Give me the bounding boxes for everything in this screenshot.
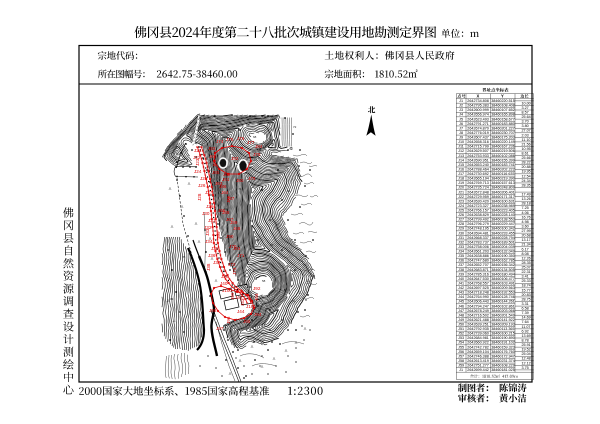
svg-text:38460181.025: 38460181.025 [491,368,515,372]
svg-text:25.04: 25.04 [522,352,531,356]
svg-text:33: 33 [170,297,174,301]
svg-text:J96: J96 [226,316,231,324]
svg-text:4.98: 4.98 [522,220,529,224]
svg-text:38460134.505: 38460134.505 [491,268,515,272]
svg-text:21.56: 21.56 [522,142,531,146]
svg-text:12.26: 12.26 [522,256,531,260]
svg-text:49: 49 [247,323,251,327]
svg-text:38460138.553: 38460138.553 [491,218,515,222]
svg-text:64: 64 [287,189,291,193]
svg-text:2642739.060: 2642739.060 [467,332,489,336]
svg-text:14.69: 14.69 [522,316,531,320]
svg-text:38460159.323: 38460159.323 [491,345,515,349]
svg-text:38460192.553: 38460192.553 [491,291,515,295]
svg-text:8.08: 8.08 [522,252,529,256]
svg-text:2642684.981: 2642684.981 [467,336,489,340]
svg-text:J14: J14 [458,158,464,162]
svg-text:2642795.383: 2642795.383 [467,104,489,108]
svg-text:38460116.635: 38460116.635 [491,172,514,176]
svg-text:J2: J2 [459,104,463,108]
svg-text:2642723.327: 2642723.327 [467,204,489,208]
svg-text:J82: J82 [231,156,239,161]
svg-text:38460190.890: 38460190.890 [491,336,515,340]
svg-text:2642638.829: 2642638.829 [467,213,489,217]
svg-text:38460209.193: 38460209.193 [491,323,515,327]
svg-text:19.95: 19.95 [522,170,531,174]
svg-text:J53: J53 [458,336,464,340]
svg-text:J69: J69 [216,231,221,239]
svg-text:38460165.898: 38460165.898 [491,113,515,117]
svg-text:J85: J85 [212,170,220,175]
svg-text:2642766.157: 2642766.157 [467,209,489,213]
svg-text:21.34: 21.34 [522,243,531,247]
svg-text:J21: J21 [194,148,202,153]
svg-text:2642672.848: 2642672.848 [467,190,489,194]
svg-text:J43: J43 [458,291,464,295]
svg-text:38460107.652: 38460107.652 [491,108,515,112]
svg-text:38460190.350: 38460190.350 [491,254,515,258]
svg-text:J100: J100 [222,288,232,293]
svg-text:38460132.049: 38460132.049 [491,250,515,254]
svg-text:J10: J10 [458,140,464,144]
svg-text:10.95: 10.95 [522,147,531,151]
svg-text:38460228.140: 38460228.140 [491,213,515,217]
svg-text:38460108.408: 38460108.408 [491,104,515,108]
svg-text:J37: J37 [458,263,464,267]
svg-text:J49: J49 [458,318,464,322]
svg-text:70: 70 [238,187,242,191]
svg-text:8.78: 8.78 [522,338,529,342]
svg-text:J25: J25 [458,209,464,213]
svg-text:J56: J56 [458,350,464,354]
svg-text:38460248.809: 38460248.809 [491,186,515,190]
svg-text:58: 58 [262,279,266,283]
svg-text:J83: J83 [208,146,216,151]
svg-text:59: 59 [250,219,254,223]
svg-text:J5: J5 [459,117,463,121]
svg-text:20.83: 20.83 [522,293,531,297]
svg-text:7.39: 7.39 [522,311,529,315]
svg-text:2642729.959: 2642729.959 [467,195,489,199]
svg-text:J40: J40 [220,281,228,286]
svg-text:38460183.741: 38460183.741 [491,163,515,167]
svg-text:38460219.506: 38460219.506 [491,149,515,153]
svg-text:68: 68 [253,135,257,139]
svg-text:2642751.277: 2642751.277 [467,364,489,368]
svg-text:2642668.337: 2642668.337 [467,236,489,240]
svg-text:J17: J17 [458,172,464,176]
svg-text:J1: J1 [459,368,463,372]
svg-text:38460156.342: 38460156.342 [491,263,515,267]
svg-text:38460141.922: 38460141.922 [491,318,515,322]
svg-text:Y: Y [501,94,504,99]
svg-text:22.31: 22.31 [522,270,531,274]
svg-text:J44: J44 [237,309,245,314]
svg-text:20.68: 20.68 [522,234,531,238]
svg-text:J73: J73 [232,267,237,275]
svg-text:J29: J29 [206,204,214,209]
svg-text:35: 35 [182,255,186,259]
svg-text:2642747.680: 2642747.680 [467,259,489,263]
svg-text:2.03: 2.03 [522,133,529,137]
svg-text:J30: J30 [458,231,464,235]
svg-text:J39: J39 [458,272,464,276]
svg-text:2642764.990: 2642764.990 [467,295,489,299]
svg-text:J71: J71 [237,253,245,258]
svg-text:38460204.039: 38460204.039 [491,245,515,249]
svg-text:11.10: 11.10 [522,138,531,142]
svg-text:J26: J26 [458,213,464,217]
svg-text:2642661.203: 2642661.203 [467,250,489,254]
svg-text:38460167.236: 38460167.236 [491,145,515,149]
svg-text:38460158.677: 38460158.677 [491,117,515,121]
svg-text:J20: J20 [458,186,464,190]
svg-text:2642674.870: 2642674.870 [467,126,489,130]
svg-text:2642656.974: 2642656.974 [467,113,489,117]
svg-text:62: 62 [224,207,228,211]
svg-text:2642683.871: 2642683.871 [467,268,489,272]
svg-text:J94: J94 [254,312,262,317]
svg-text:J75: J75 [226,137,234,142]
svg-text:38460230.707: 38460230.707 [491,131,515,135]
svg-text:2642697.525: 2642697.525 [467,286,489,290]
svg-text:2642794.247: 2642794.247 [467,304,489,308]
svg-text:25.91: 25.91 [522,343,531,347]
svg-text:J23: J23 [458,199,464,203]
svg-text:J34: J34 [458,250,464,254]
svg-text:7.25: 7.25 [522,206,529,210]
svg-text:18.74: 18.74 [522,284,531,288]
svg-text:J40: J40 [458,277,464,281]
svg-text:12.48: 12.48 [522,357,531,361]
svg-text:2642639.251: 2642639.251 [467,323,489,327]
svg-text:J23: J23 [195,158,200,166]
svg-text:J9: J9 [459,136,463,140]
svg-text:38460175.203: 38460175.203 [491,136,515,140]
svg-text:38460231.374: 38460231.374 [491,359,515,363]
svg-text:38460209.563: 38460209.563 [491,286,515,290]
svg-text:J78: J78 [253,152,261,157]
svg-text:2642694.481: 2642694.481 [467,231,489,235]
svg-text:J52: J52 [458,332,464,336]
svg-text:3.60: 3.60 [522,224,529,228]
svg-text:J8: J8 [459,131,463,135]
svg-text:27.07: 27.07 [522,129,531,133]
svg-text:38460100.342: 38460100.342 [491,227,515,231]
svg-text:J99: J99 [230,292,235,300]
svg-text:J25: J25 [200,176,208,181]
svg-text:J39: J39 [221,274,229,279]
svg-text:3.70: 3.70 [522,120,529,124]
svg-text:J59: J59 [458,364,464,368]
svg-text:J43: J43 [240,298,245,306]
svg-text:27.99: 27.99 [522,229,531,233]
svg-text:38460233.455: 38460233.455 [491,231,515,235]
svg-text:J68: J68 [233,226,241,231]
svg-text:2642690.951: 2642690.951 [467,158,489,162]
svg-text:J36: J36 [458,259,464,263]
svg-text:J33: J33 [458,245,464,249]
svg-text:2642660.922: 2642660.922 [467,341,489,345]
svg-text:2642799.492: 2642799.492 [467,218,489,222]
svg-text:J64: J64 [221,190,229,195]
svg-text:2642629.507: 2642629.507 [467,149,489,153]
svg-text:3.27: 3.27 [522,106,529,110]
svg-text:38460172.947: 38460172.947 [491,354,515,358]
svg-text:24.34: 24.34 [522,179,531,183]
svg-text:38460202.222: 38460202.222 [491,167,515,171]
svg-text:J28: J28 [197,193,202,201]
svg-text:J84: J84 [255,144,263,149]
svg-text:15.77: 15.77 [522,288,531,292]
svg-text:38460189.501: 38460189.501 [491,240,515,244]
svg-text:38460100.215: 38460100.215 [491,332,515,336]
svg-text:J21: J21 [458,190,464,194]
svg-text:J77: J77 [247,140,255,145]
svg-text:J57: J57 [458,354,464,358]
svg-text:2642796.279: 2642796.279 [467,222,489,226]
svg-text:J35: J35 [458,254,464,258]
svg-text:J41: J41 [235,288,243,293]
svg-text:J31: J31 [208,218,216,223]
svg-text:J3: J3 [459,108,463,112]
svg-text:J51: J51 [458,327,464,331]
svg-text:J7: J7 [459,126,463,130]
svg-text:38460162.785: 38460162.785 [491,259,515,263]
svg-text:16.76: 16.76 [522,215,531,219]
svg-text:J29: J29 [458,227,464,231]
svg-text:2642783.737: 2642783.737 [467,240,489,244]
svg-text:2642665.194: 2642665.194 [467,177,489,181]
svg-text:38460102.861: 38460102.861 [491,304,515,308]
svg-text:2642758.006: 2642758.006 [467,245,489,249]
svg-text:38460183.880: 38460183.880 [491,122,515,126]
svg-text:2642621.488: 2642621.488 [467,318,489,322]
svg-text:2642638.886: 2642638.886 [467,254,489,258]
svg-text:10.00: 10.00 [522,101,531,105]
svg-text:2642613.419: 2642613.419 [467,359,489,363]
svg-text:2642791.271: 2642791.271 [467,122,489,126]
svg-text:J42: J42 [458,286,464,290]
svg-text:13.17: 13.17 [522,238,531,242]
svg-text:J11: J11 [458,145,464,149]
svg-text:25.33: 25.33 [522,279,531,283]
svg-text:38460201.227: 38460201.227 [491,126,515,130]
svg-text:J26: J26 [198,183,206,188]
svg-text:J86: J86 [219,184,227,189]
svg-text:2642742.782: 2642742.782 [467,345,489,349]
svg-text:2642769.713: 2642769.713 [467,181,489,185]
svg-text:38460113.365: 38460113.365 [491,327,514,331]
svg-text:6.58: 6.58 [522,307,529,311]
svg-text:J76: J76 [237,136,245,141]
svg-text:2642715.799: 2642715.799 [467,145,489,149]
svg-text:J55: J55 [458,345,464,349]
svg-text:13.26: 13.26 [522,197,531,201]
svg-text:J15: J15 [458,163,464,167]
svg-text:3.75: 3.75 [522,366,529,370]
svg-text:61: 61 [292,299,296,303]
svg-text:3.41: 3.41 [522,275,529,279]
svg-text:2642730.692: 2642730.692 [467,172,489,176]
svg-text:J32: J32 [458,240,464,244]
svg-text:2642607.437: 2642607.437 [467,136,489,140]
svg-text:J101: J101 [246,304,256,309]
svg-text:2642600.999: 2642600.999 [467,108,489,112]
svg-text:2642785.316: 2642785.316 [467,272,489,276]
svg-text:J38: J38 [206,263,211,271]
svg-text:38460171.317: 38460171.317 [491,195,515,199]
svg-text:J93: J93 [254,293,259,301]
svg-text:J34: J34 [205,239,213,244]
svg-text:J22: J22 [458,195,464,199]
svg-text:J27: J27 [205,190,213,195]
svg-text:38460228.794: 38460228.794 [491,236,515,240]
svg-text:J48: J48 [458,313,464,317]
svg-text:4.06: 4.06 [522,211,529,215]
svg-text:2642776.019: 2642776.019 [467,131,489,135]
svg-text:38460108.229: 38460108.229 [491,364,515,368]
svg-text:66: 66 [270,243,274,247]
svg-text:3.31: 3.31 [522,302,529,306]
svg-text:J13: J13 [458,154,464,158]
svg-text:J18: J18 [458,177,464,181]
svg-text:2642630.420: 2642630.420 [467,199,489,203]
svg-text:72: 72 [293,125,297,129]
svg-text:28.22: 28.22 [522,161,531,165]
svg-text:J91: J91 [233,246,241,251]
svg-text:2642652.707: 2642652.707 [467,263,489,267]
svg-text:2642699.442: 2642699.442 [467,368,489,372]
svg-text:J44: J44 [458,295,464,299]
svg-text:12.54: 12.54 [522,174,531,178]
svg-text:J97: J97 [216,326,224,331]
svg-text:2642768.557: 2642768.557 [467,281,489,285]
svg-text:38460180.494: 38460180.494 [491,272,515,276]
svg-text:38460191.102: 38460191.102 [491,341,515,345]
svg-text:20.88: 20.88 [522,165,531,169]
svg-text:38460103.491: 38460103.491 [491,281,515,285]
svg-text:7.64: 7.64 [522,320,529,324]
svg-text:38460144.261: 38460144.261 [491,300,515,304]
svg-text:J61: J61 [212,159,217,167]
svg-text:J19: J19 [458,181,464,185]
svg-text:J60: J60 [209,154,217,159]
svg-text:81: 81 [262,159,266,163]
svg-text:28.75: 28.75 [522,297,531,301]
svg-text:2642716.502: 2642716.502 [467,313,489,317]
svg-text:38460220.149: 38460220.149 [491,140,515,144]
svg-text:J54: J54 [458,341,464,345]
svg-text:J45: J45 [458,300,464,304]
svg-text:13.69: 13.69 [522,334,531,338]
svg-text:28.35: 28.35 [522,261,531,265]
svg-text:X: X [477,94,480,99]
svg-text:J12: J12 [458,149,464,153]
svg-text:J72: J72 [228,262,236,267]
svg-text:25.64: 25.64 [522,115,531,119]
svg-text:2642746.388: 2642746.388 [467,354,489,358]
svg-text:J50: J50 [458,323,464,327]
svg-text:38460157.613: 38460157.613 [491,181,515,185]
svg-text:J98: J98 [209,308,217,313]
svg-text:J24: J24 [194,169,202,174]
svg-text:J81: J81 [222,177,230,182]
svg-text:38460106.477: 38460106.477 [491,277,515,281]
svg-text:38460203.066: 38460203.066 [491,309,515,313]
svg-text:38460220.515: 38460220.515 [491,99,515,103]
svg-text:38460176.760: 38460176.760 [491,350,515,354]
svg-text:J28: J28 [458,222,464,226]
svg-text:J37: J37 [213,260,221,265]
svg-text:38460206.401: 38460206.401 [491,190,515,194]
svg-text:11.07: 11.07 [522,325,531,329]
svg-text:J47: J47 [458,309,464,313]
svg-text:J24: J24 [458,204,464,208]
svg-text:28.18: 28.18 [522,202,531,206]
svg-text:38460102.086: 38460102.086 [491,154,515,158]
svg-text:J46: J46 [458,304,464,308]
svg-text:8.57: 8.57 [522,110,529,114]
svg-text:2642748.195: 2642748.195 [467,227,489,231]
svg-text:2642653.240: 2642653.240 [467,163,489,167]
svg-text:J36: J36 [208,253,216,258]
svg-text:J33: J33 [205,228,210,236]
svg-text:2642659.104: 2642659.104 [467,350,489,354]
svg-text:6.17: 6.17 [522,247,529,251]
svg-text:8.61: 8.61 [522,152,529,156]
svg-text:J31: J31 [458,236,464,240]
svg-text:38460223.405: 38460223.405 [491,209,515,213]
svg-text:2642718.248: 2642718.248 [467,291,489,295]
svg-text:J90: J90 [226,234,234,239]
svg-text:38460201.549: 38460201.549 [491,313,515,317]
svg-text:J27: J27 [458,218,464,222]
svg-text:J79: J79 [248,176,256,181]
svg-text:2642678.249: 2642678.249 [467,309,489,313]
svg-text:J16: J16 [458,167,464,171]
svg-text:J41: J41 [458,281,464,285]
svg-text:J58: J58 [458,359,464,363]
svg-text:2642734.808: 2642734.808 [467,99,489,103]
svg-text:38460155.399: 38460155.399 [491,158,515,162]
svg-text:28.35: 28.35 [522,183,531,187]
svg-text:2642606.443: 2642606.443 [467,300,489,304]
svg-text:2642753.933: 2642753.933 [467,154,489,158]
svg-text:J4: J4 [459,113,463,117]
svg-text:J74: J74 [216,139,224,144]
svg-text:38460219.390: 38460219.390 [491,177,515,181]
svg-text:2642735.724: 2642735.724 [467,186,489,190]
svg-text:J89: J89 [230,220,238,225]
svg-text:25.07: 25.07 [522,266,531,270]
svg-text:J92: J92 [253,286,261,291]
svg-text:J30: J30 [202,211,210,216]
svg-text:2642792.935: 2642792.935 [467,327,489,331]
svg-text:3.80: 3.80 [522,124,529,128]
svg-text:25.66: 25.66 [522,156,531,160]
svg-text:19.52: 19.52 [522,348,531,352]
svg-text:75: 75 [215,117,219,121]
svg-text:J35: J35 [211,246,219,251]
svg-text:6.92: 6.92 [522,329,529,333]
svg-text:38460229.447: 38460229.447 [491,222,515,226]
svg-text:2642623.493: 2642623.493 [467,117,489,121]
svg-text:2642647.530: 2642647.530 [467,277,489,281]
svg-text:J38: J38 [458,268,464,272]
svg-text:J6: J6 [459,122,463,126]
svg-text:2642788.464: 2642788.464 [467,167,489,171]
